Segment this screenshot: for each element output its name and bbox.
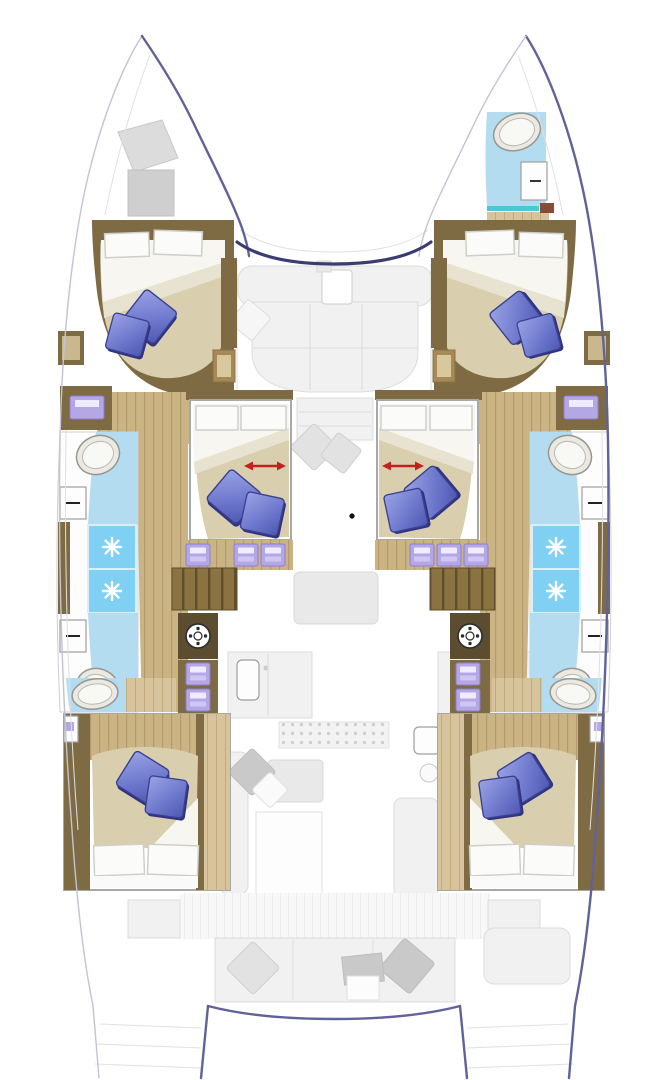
bulkhead-port	[221, 258, 237, 348]
nav-seat	[394, 798, 438, 898]
coachroof-line	[240, 230, 428, 252]
bow-locker-hatch-icon	[128, 170, 174, 216]
floor-plan-svg	[0, 0, 667, 1080]
hull-step-port	[213, 350, 235, 382]
step-stool	[234, 544, 258, 566]
stern-edge-starboard	[460, 1006, 467, 1078]
salon-table	[322, 270, 352, 304]
galley-island	[294, 572, 378, 624]
washer-icon	[450, 613, 490, 659]
aft-deck-teak	[180, 893, 490, 939]
step-stool	[186, 689, 210, 711]
cockpit-side-seat-port	[128, 900, 180, 938]
bed-pillow	[241, 406, 286, 430]
bow-head-starboard	[486, 107, 555, 222]
step-stool	[456, 663, 480, 685]
hull-step-starboard	[433, 350, 455, 382]
bed-pillow	[466, 230, 515, 256]
bed-pillow	[430, 406, 472, 430]
bed-pillow	[147, 844, 198, 876]
transom-steps	[95, 1024, 573, 1068]
blue-pillow	[239, 491, 287, 539]
bed-pillow	[381, 406, 426, 430]
shower-head-icon	[103, 538, 121, 556]
cockpit-bench	[215, 938, 455, 1002]
blue-pillow	[383, 487, 431, 535]
step-stool	[437, 544, 461, 566]
step-stool	[464, 544, 488, 566]
bed-pillow	[523, 844, 574, 876]
hull-stairs-port	[172, 568, 237, 610]
galley-dial	[420, 764, 438, 782]
hull-bench-port	[60, 386, 112, 430]
hull-stairs-starboard	[430, 568, 495, 610]
bow-deck-port	[118, 120, 178, 216]
dinette-mat	[256, 812, 322, 896]
galley-appliance	[414, 727, 440, 754]
aft-beam	[208, 1006, 460, 1019]
bulkhead-starboard	[431, 258, 447, 348]
hull-bench-starboard	[556, 386, 608, 430]
bed-pillow	[105, 232, 150, 258]
bow-hatch-icon	[118, 120, 178, 172]
bed-pillow	[93, 844, 144, 876]
shower-head-icon	[547, 582, 565, 600]
shower-head-icon	[103, 582, 121, 600]
step-stool	[186, 663, 210, 685]
cabin-mid-starboard	[375, 390, 488, 570]
bow-fitting	[540, 203, 554, 213]
windscreen	[237, 242, 431, 264]
shower-head-icon	[547, 538, 565, 556]
catamaran-floor-plan	[0, 0, 667, 1080]
galley-grate	[279, 722, 389, 748]
step-stool	[186, 544, 210, 566]
step-stool	[261, 544, 285, 566]
bed-pillow	[196, 406, 238, 430]
teal-sill	[487, 206, 539, 211]
hull-locker-starboard	[584, 331, 610, 365]
step-stool	[456, 689, 480, 711]
step-stool	[410, 544, 434, 566]
blue-pillow	[144, 775, 190, 821]
lower-deck	[57, 107, 611, 890]
stern-edge-port	[201, 1006, 208, 1078]
bed-pillow	[519, 232, 564, 258]
blue-pillow	[478, 775, 524, 821]
mast-step-dot	[349, 513, 354, 518]
bed-pillow	[154, 230, 203, 256]
galley-sink	[237, 660, 259, 700]
cockpit-locker	[484, 928, 570, 984]
hull-locker-port	[58, 331, 84, 365]
dinette	[220, 748, 323, 896]
washer-icon	[178, 613, 218, 659]
cabin-mid-port	[186, 390, 293, 570]
bed-pillow	[469, 844, 520, 876]
